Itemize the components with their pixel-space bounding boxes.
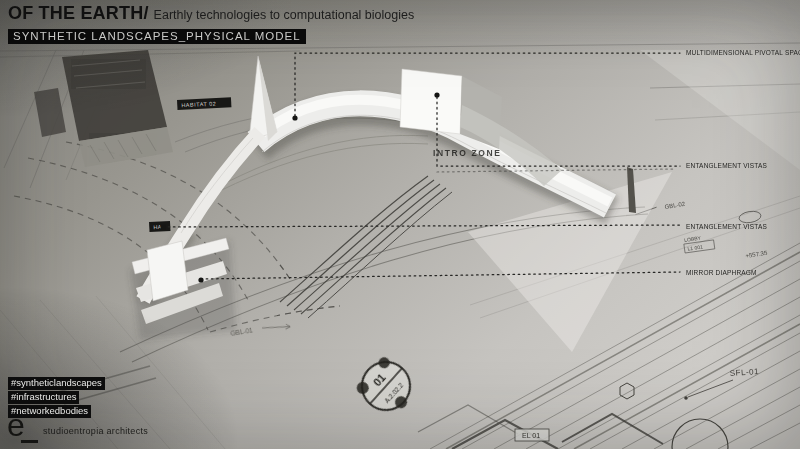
callout-mirror-diaphragm: MIRROR DIAPHRAGM: [686, 269, 757, 276]
siteplan-photo: HABITAT 02 HA GBL-02 LOBBY L1 001 +557.3…: [0, 0, 800, 449]
page-subtitle: Earthly technologies to computational bi…: [154, 8, 415, 22]
intro-zone-label: INTRO ZONE: [433, 148, 501, 158]
page-title: OF THE EARTH/: [8, 3, 149, 24]
header: OF THE EARTH/ Earthly technologies to co…: [8, 3, 414, 24]
studio-logo: e: [7, 409, 25, 441]
slide: HABITAT 02 HA GBL-02 LOBBY L1 001 +557.3…: [0, 0, 800, 449]
callout-entanglement-1: ENTANGLEMENT VISTAS: [686, 162, 767, 169]
svg-text:EL 01: EL 01: [522, 432, 540, 439]
studio-logo-underscore: [21, 440, 38, 443]
habitat-partial-label: HA: [149, 221, 170, 232]
hashtag: #infrastructures: [8, 391, 79, 404]
paper-wall: [400, 69, 462, 134]
hashtag: #syntheticlandscapes: [8, 377, 105, 390]
el01-label: EL 01: [515, 429, 549, 441]
callout-pivotal-space: MULTIDIMENSIONAL PIVOTAL SPACE: [686, 49, 800, 56]
studio-name: studioentropia architects: [43, 426, 148, 436]
paper-block: [147, 241, 188, 301]
callout-entanglement-2: ENTANGLEMENT VISTAS: [686, 223, 767, 230]
section-banner: SYNTHETIC LANDSCAPES_PHYSICAL MODEL: [8, 29, 306, 44]
